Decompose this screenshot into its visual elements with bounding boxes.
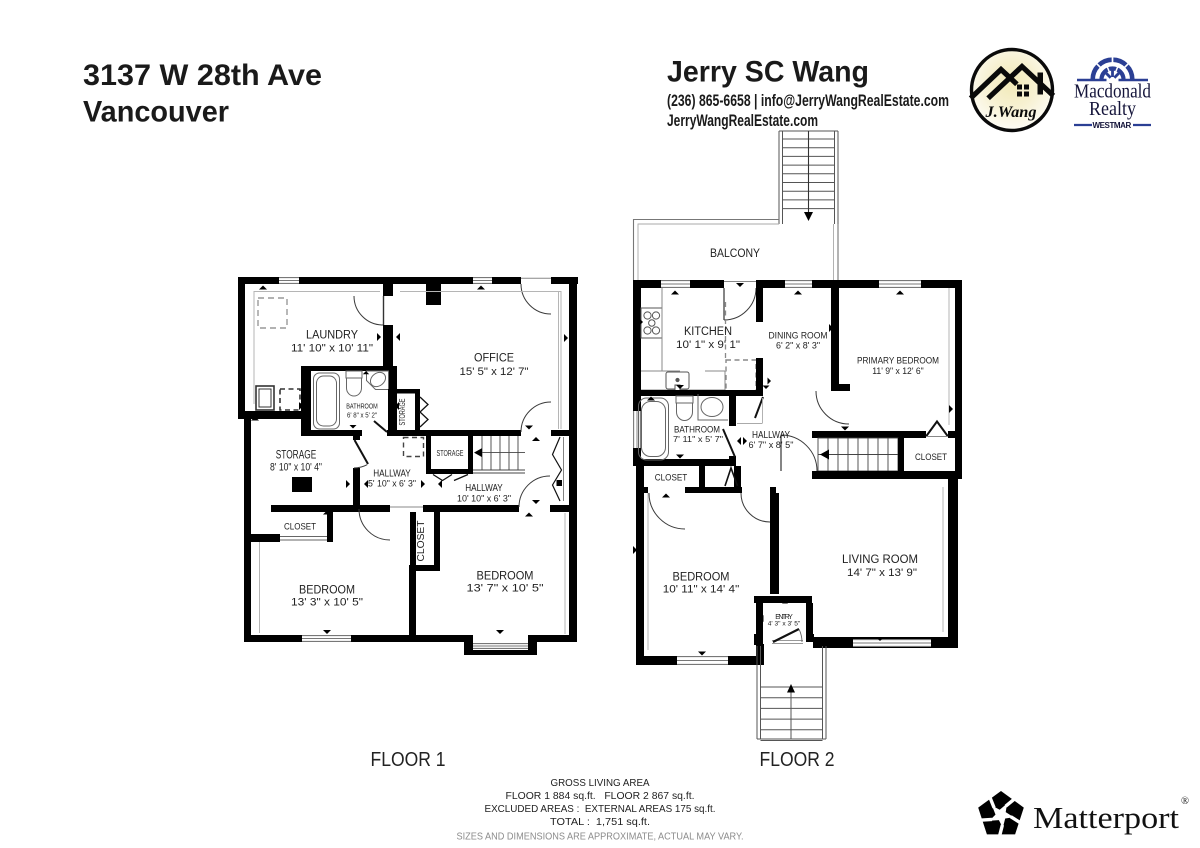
svg-text:STORAGE: STORAGE	[276, 450, 317, 462]
svg-text:SIZES AND DIMENSIONS ARE APPRO: SIZES AND DIMENSIONS ARE APPROXIMATE, AC…	[457, 831, 744, 843]
svg-text:LAUNDRY: LAUNDRY	[306, 330, 358, 342]
svg-text:CLOSET: CLOSET	[915, 452, 947, 463]
svg-text:BATHROOM: BATHROOM	[674, 425, 720, 435]
svg-text:J.Wang: J.Wang	[984, 104, 1036, 121]
svg-text:5' 10" x 6' 3": 5' 10" x 6' 3"	[368, 479, 416, 490]
svg-text:10' 11" x 14' 4": 10' 11" x 14' 4"	[663, 584, 740, 596]
svg-text:FLOOR 1: FLOOR 1	[371, 748, 446, 771]
svg-text:®: ®	[1181, 796, 1189, 807]
svg-text:Matterport: Matterport	[1033, 800, 1179, 835]
svg-text:LIVING ROOM: LIVING ROOM	[842, 554, 918, 566]
svg-text:6' 2" x 8' 3": 6' 2" x 8' 3"	[776, 341, 820, 351]
svg-text:BALCONY: BALCONY	[710, 248, 760, 260]
svg-text:JerryWangRealEstate.com: JerryWangRealEstate.com	[667, 112, 818, 130]
svg-text:CLOSET: CLOSET	[416, 521, 427, 562]
svg-text:CLOSET: CLOSET	[655, 473, 688, 483]
svg-text:BATHROOM: BATHROOM	[346, 402, 378, 411]
svg-text:6' 8" x 5' 2": 6' 8" x 5' 2"	[347, 413, 377, 420]
svg-text:FLOOR 2: FLOOR 2	[760, 748, 835, 771]
svg-text:STORAGE: STORAGE	[437, 449, 464, 458]
svg-text:GROSS LIVING AREA: GROSS LIVING AREA	[551, 777, 650, 789]
svg-text:BEDROOM: BEDROOM	[477, 571, 534, 583]
svg-text:EXCLUDED AREAS : EXTERNAL ARE: EXCLUDED AREAS : EXTERNAL AREAS 175 sq.f…	[485, 803, 716, 815]
svg-text:BEDROOM: BEDROOM	[673, 572, 730, 584]
svg-text:KITCHEN: KITCHEN	[684, 326, 732, 338]
svg-text:WESTMAR: WESTMAR	[1093, 121, 1133, 130]
svg-text:14' 7" x 13' 9": 14' 7" x 13' 9"	[847, 567, 917, 579]
svg-text:11' 9" x 12' 6": 11' 9" x 12' 6"	[872, 366, 924, 376]
svg-text:11' 10" x 10' 11": 11' 10" x 10' 11"	[291, 343, 373, 355]
svg-text:7' 11" x 5' 7": 7' 11" x 5' 7"	[673, 434, 723, 444]
svg-text:(236) 865-6658 | info@JerryWan: (236) 865-6658 | info@JerryWangRealEstat…	[667, 91, 949, 110]
svg-text:Vancouver: Vancouver	[83, 96, 229, 129]
svg-text:PRIMARY BEDROOM: PRIMARY BEDROOM	[857, 356, 939, 367]
svg-text:10' 1" x 9' 1": 10' 1" x 9' 1"	[676, 339, 740, 351]
svg-text:Jerry SC Wang: Jerry SC Wang	[667, 56, 869, 89]
svg-text:10' 10" x 6' 3": 10' 10" x 6' 3"	[457, 494, 511, 505]
svg-text:OFFICE: OFFICE	[474, 353, 514, 365]
svg-text:CLOSET: CLOSET	[284, 522, 316, 532]
svg-text:13' 7" x 10' 5": 13' 7" x 10' 5"	[467, 583, 544, 595]
svg-text:3137 W 28th Ave: 3137 W 28th Ave	[83, 59, 322, 92]
svg-text:FLOOR 1 884 sq.ft. FLOOR 2 8: FLOOR 1 884 sq.ft. FLOOR 2 867 sq.ft.	[506, 790, 695, 802]
svg-text:6' 7" x 8' 5": 6' 7" x 8' 5"	[749, 440, 794, 451]
svg-text:TOTAL : 1,751 sq.ft.: TOTAL : 1,751 sq.ft.	[550, 816, 650, 828]
svg-text:8' 10" x 10' 4": 8' 10" x 10' 4"	[270, 462, 322, 474]
svg-text:HALLWAY: HALLWAY	[465, 483, 503, 494]
svg-text:4' 3" x 3' 5": 4' 3" x 3' 5"	[768, 621, 801, 628]
svg-text:BEDROOM: BEDROOM	[299, 585, 355, 597]
svg-text:STORAGE: STORAGE	[398, 399, 407, 426]
svg-text:15' 5" x 12' 7": 15' 5" x 12' 7"	[460, 366, 529, 378]
svg-text:Realty: Realty	[1089, 98, 1136, 120]
svg-text:13' 3" x 10' 5": 13' 3" x 10' 5"	[291, 597, 363, 609]
